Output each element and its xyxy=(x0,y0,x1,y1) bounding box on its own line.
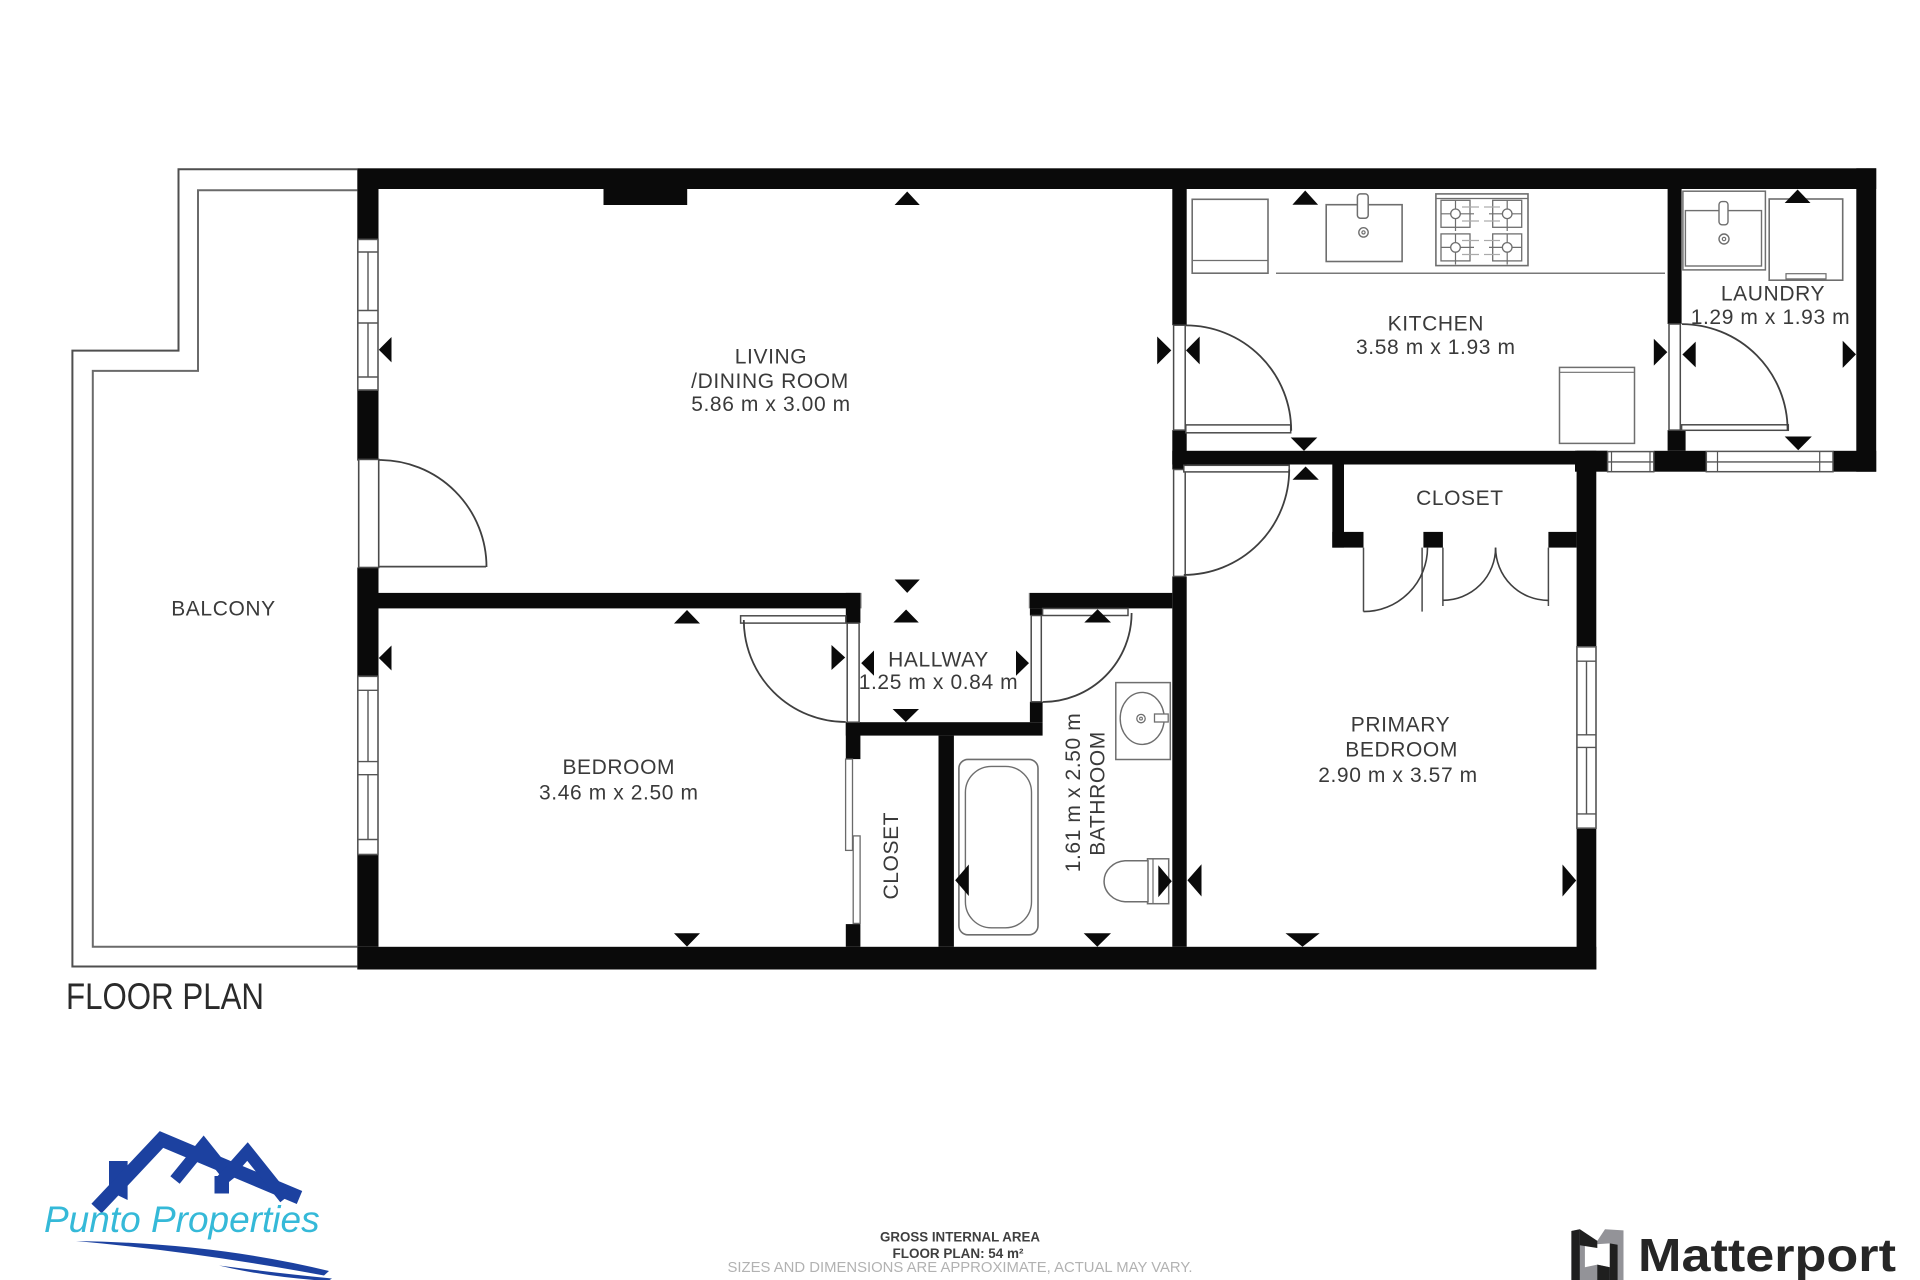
svg-text:5.86 m x 3.00 m: 5.86 m x 3.00 m xyxy=(691,393,851,416)
svg-text:LAUNDRY: LAUNDRY xyxy=(1721,283,1825,306)
svg-text:LIVING: LIVING xyxy=(735,346,807,369)
svg-text:SIZES AND DIMENSIONS ARE APPRO: SIZES AND DIMENSIONS ARE APPROXIMATE, AC… xyxy=(728,1259,1193,1276)
svg-text:CLOSET: CLOSET xyxy=(1416,487,1504,510)
svg-text:3.46 m x 2.50 m: 3.46 m x 2.50 m xyxy=(539,782,699,805)
svg-text:FLOOR PLAN: FLOOR PLAN xyxy=(66,976,264,1017)
svg-text:BEDROOM: BEDROOM xyxy=(1345,739,1458,762)
svg-text:KITCHEN: KITCHEN xyxy=(1388,312,1484,335)
svg-text:1.29 m x 1.93 m: 1.29 m x 1.93 m xyxy=(1691,306,1851,329)
svg-text:BALCONY: BALCONY xyxy=(171,597,276,620)
svg-text:Matterport: Matterport xyxy=(1638,1229,1896,1280)
svg-text:1.61 m x 2.50 m: 1.61 m x 2.50 m xyxy=(1062,713,1085,873)
svg-text:Punto Properties: Punto Properties xyxy=(44,1199,320,1240)
svg-text:CLOSET: CLOSET xyxy=(880,812,903,900)
svg-text:BEDROOM: BEDROOM xyxy=(562,756,675,779)
svg-text:GROSS INTERNAL AREA: GROSS INTERNAL AREA xyxy=(880,1230,1040,1245)
svg-text:PRIMARY: PRIMARY xyxy=(1351,714,1451,737)
svg-text:HALLWAY: HALLWAY xyxy=(888,648,989,671)
svg-text:1.25 m x 0.84 m: 1.25 m x 0.84 m xyxy=(859,671,1019,694)
svg-text:2.90 m x 3.57 m: 2.90 m x 3.57 m xyxy=(1318,764,1478,787)
svg-text:/DINING ROOM: /DINING ROOM xyxy=(691,370,849,393)
svg-text:BATHROOM: BATHROOM xyxy=(1087,731,1110,856)
svg-text:3.58 m x 1.93 m: 3.58 m x 1.93 m xyxy=(1356,336,1516,359)
